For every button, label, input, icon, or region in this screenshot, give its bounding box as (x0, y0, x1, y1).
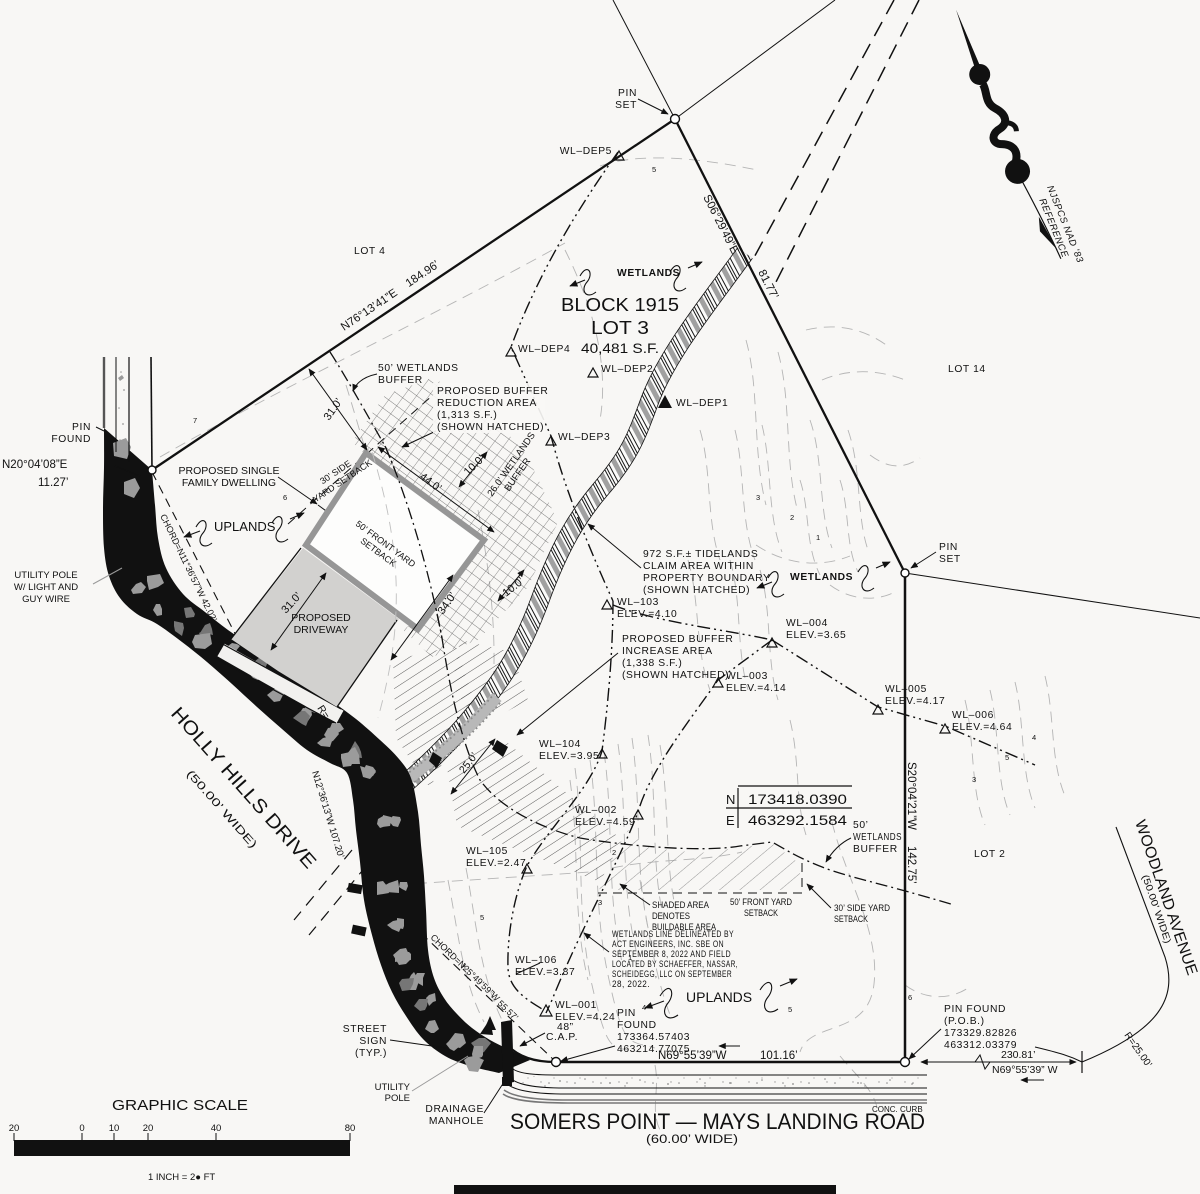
svg-text:7: 7 (193, 416, 197, 425)
svg-text:WL–DEP2: WL–DEP2 (601, 364, 653, 375)
svg-text:PROPOSED BUFFER: PROPOSED BUFFER (622, 634, 733, 645)
svg-text:C.A.P.: C.A.P. (546, 1032, 578, 1043)
svg-text:UPLANDS: UPLANDS (686, 989, 752, 1005)
svg-text:BLOCK 1915: BLOCK 1915 (561, 295, 679, 315)
svg-text:(SHOWN HATCHED): (SHOWN HATCHED) (622, 670, 729, 681)
svg-text:101.16’: 101.16’ (760, 1050, 798, 1062)
svg-text:WL–DEP4: WL–DEP4 (518, 344, 570, 355)
svg-text:BUFFER: BUFFER (853, 844, 898, 855)
svg-text:WL–DEP5: WL–DEP5 (560, 146, 612, 157)
svg-text:WL–005: WL–005 (885, 684, 927, 695)
svg-text:173329.82826: 173329.82826 (944, 1028, 1017, 1039)
svg-text:UPLANDS: UPLANDS (214, 519, 276, 534)
svg-text:5: 5 (480, 913, 484, 922)
svg-text:(1,338 S.F.): (1,338 S.F.) (622, 658, 682, 669)
svg-text:WETLANDS: WETLANDS (617, 268, 680, 279)
svg-text:ELEV.=4.64: ELEV.=4.64 (952, 722, 1012, 733)
svg-text:S20°04’21”W: S20°04’21”W (905, 762, 917, 830)
svg-text:972 S.F.± TIDELANDS: 972 S.F.± TIDELANDS (643, 549, 758, 560)
svg-text:PROPOSED BUFFER: PROPOSED BUFFER (437, 386, 548, 397)
svg-text:WL–103: WL–103 (617, 597, 659, 608)
svg-text:W/ LIGHT AND: W/ LIGHT AND (14, 582, 78, 593)
svg-text:FOUND: FOUND (51, 434, 91, 445)
svg-text:FAMILY DWELLING: FAMILY DWELLING (182, 477, 276, 489)
svg-text:WL–006: WL–006 (952, 710, 994, 721)
svg-text:WETLANDS: WETLANDS (790, 572, 853, 583)
svg-text:INCREASE AREA: INCREASE AREA (622, 646, 713, 657)
svg-text:ELEV.=3.95: ELEV.=3.95 (539, 751, 599, 762)
svg-text:GUY WIRE: GUY WIRE (22, 594, 70, 605)
svg-text:173418.0390: 173418.0390 (748, 792, 847, 807)
svg-text:WL–004: WL–004 (786, 618, 828, 629)
svg-text:5: 5 (1005, 753, 1009, 762)
svg-text:ELEV.=4.59: ELEV.=4.59 (575, 817, 635, 828)
svg-text:ELEV.=4.17: ELEV.=4.17 (885, 696, 945, 707)
svg-text:WL–002: WL–002 (575, 805, 617, 816)
svg-text:PIN FOUND: PIN FOUND (944, 1004, 1006, 1015)
svg-text:WETLANDS: WETLANDS (853, 832, 902, 843)
svg-text:UTILITY: UTILITY (375, 1082, 411, 1093)
svg-text:WL–104: WL–104 (539, 739, 581, 750)
svg-text:GRAPHIC SCALE: GRAPHIC SCALE (112, 1098, 248, 1114)
svg-text:ELEV.=4.10: ELEV.=4.10 (617, 609, 677, 620)
svg-text:POLE: POLE (385, 1093, 410, 1104)
svg-text:SEPTEMBER 8, 2022 AND FIELD: SEPTEMBER 8, 2022 AND FIELD (612, 949, 731, 959)
svg-text:SET: SET (615, 100, 637, 111)
svg-text:20: 20 (9, 1123, 20, 1134)
svg-text:10: 10 (109, 1123, 120, 1134)
svg-text:2: 2 (790, 513, 794, 522)
svg-text:SETBACK: SETBACK (744, 908, 778, 918)
svg-text:DRAINAGE: DRAINAGE (425, 1104, 484, 1115)
svg-text:LOCATED BY SCHAEFFER, NASSAR,: LOCATED BY SCHAEFFER, NASSAR, (612, 959, 738, 969)
svg-text:5: 5 (788, 1005, 792, 1014)
svg-text:E: E (726, 813, 735, 828)
svg-text:LOT 14: LOT 14 (948, 364, 986, 375)
svg-text:142.75’: 142.75’ (905, 846, 917, 884)
svg-text:ELEV.=2.47: ELEV.=2.47 (466, 858, 526, 869)
svg-text:MANHOLE: MANHOLE (429, 1116, 484, 1127)
svg-text:ELEV.=3.87: ELEV.=3.87 (515, 967, 575, 978)
svg-text:ELEV.=4.14: ELEV.=4.14 (726, 683, 786, 694)
svg-text:20: 20 (143, 1123, 154, 1134)
svg-text:LOT 2: LOT 2 (974, 849, 1005, 860)
svg-text:N69°55’39” W: N69°55’39” W (992, 1064, 1058, 1076)
svg-text:463214.77075: 463214.77075 (617, 1044, 690, 1055)
svg-text:LOT 3: LOT 3 (591, 318, 649, 338)
svg-text:PROPOSED: PROPOSED (291, 612, 351, 624)
svg-text:SETBACK: SETBACK (834, 914, 868, 924)
svg-text:CONC. CURB: CONC. CURB (872, 1105, 923, 1114)
svg-text:3: 3 (756, 493, 760, 502)
svg-text:(60.00’ WIDE): (60.00’ WIDE) (646, 1134, 738, 1146)
svg-text:6: 6 (908, 993, 912, 1002)
svg-text:28, 2022.: 28, 2022. (612, 979, 650, 989)
svg-text:WL–DEP3: WL–DEP3 (558, 432, 610, 443)
svg-text:ACT ENGINEERS, INC. SBE ON: ACT ENGINEERS, INC. SBE ON (612, 939, 724, 949)
svg-text:1 INCH = 2● FT: 1 INCH = 2● FT (148, 1172, 215, 1183)
svg-text:40,481 S.F.: 40,481 S.F. (581, 341, 659, 356)
svg-text:BUFFER: BUFFER (378, 375, 423, 386)
svg-text:173364.57403: 173364.57403 (617, 1032, 690, 1043)
svg-text:CLAIM AREA WITHIN: CLAIM AREA WITHIN (643, 561, 754, 572)
svg-text:3: 3 (972, 775, 976, 784)
svg-text:50’: 50’ (853, 820, 869, 831)
svg-text:N20°04’08”E: N20°04’08”E (2, 459, 68, 471)
svg-text:6: 6 (283, 493, 287, 502)
svg-text:230.81’: 230.81’ (1001, 1049, 1035, 1061)
svg-text:WL–105: WL–105 (466, 846, 508, 857)
svg-text:STREET: STREET (343, 1024, 387, 1035)
svg-text:PROPOSED SINGLE: PROPOSED SINGLE (179, 465, 280, 477)
svg-text:SOMERS POINT — MAYS LANDING RO: SOMERS POINT — MAYS LANDING ROAD (510, 1109, 925, 1134)
svg-text:WL–003: WL–003 (726, 671, 768, 682)
svg-text:50’ FRONT YARD: 50’ FRONT YARD (730, 897, 792, 907)
svg-text:11.27’: 11.27’ (38, 477, 68, 489)
svg-text:80: 80 (345, 1123, 356, 1134)
svg-text:WL–DEP1: WL–DEP1 (676, 398, 728, 409)
svg-text:5: 5 (652, 165, 656, 174)
svg-text:SHADED AREA: SHADED AREA (652, 900, 710, 911)
svg-text:3: 3 (598, 898, 602, 907)
svg-text:PIN: PIN (617, 1008, 636, 1019)
svg-text:PIN: PIN (939, 542, 958, 553)
svg-text:PIN: PIN (72, 422, 91, 433)
svg-text:ELEV.=3.65: ELEV.=3.65 (786, 630, 846, 641)
svg-text:N: N (726, 792, 735, 807)
svg-text:WL–001: WL–001 (555, 1000, 597, 1011)
svg-text:PIN: PIN (618, 88, 637, 99)
svg-text:WETLANDS LINE DELINEATED BY: WETLANDS LINE DELINEATED BY (612, 929, 734, 939)
svg-text:FOUND: FOUND (617, 1020, 657, 1031)
svg-text:UTILITY POLE: UTILITY POLE (14, 570, 77, 581)
svg-text:50’ WETLANDS: 50’ WETLANDS (378, 363, 459, 374)
svg-text:(SHOWN HATCHED): (SHOWN HATCHED) (643, 585, 750, 596)
svg-text:(1,313 S.F.): (1,313 S.F.) (437, 410, 497, 421)
svg-text:DENOTES: DENOTES (652, 911, 690, 922)
svg-text:WL–106: WL–106 (515, 955, 557, 966)
svg-text:40: 40 (211, 1123, 222, 1134)
svg-text:(P.O.B.): (P.O.B.) (944, 1016, 985, 1027)
svg-text:1: 1 (816, 533, 820, 542)
svg-text:0: 0 (79, 1123, 84, 1134)
svg-text:SIGN: SIGN (359, 1036, 387, 1047)
svg-text:SCHEIDEGG, LLC ON SEPTEMBER: SCHEIDEGG, LLC ON SEPTEMBER (612, 969, 732, 979)
svg-text:LOT 4: LOT 4 (354, 246, 385, 257)
svg-text:(TYP.): (TYP.) (355, 1048, 387, 1059)
svg-text:REDUCTION AREA: REDUCTION AREA (437, 398, 537, 409)
svg-text:463292.1584: 463292.1584 (748, 813, 848, 828)
svg-text:PROPERTY BOUNDARY: PROPERTY BOUNDARY (643, 573, 771, 584)
svg-text:30’ SIDE YARD: 30’ SIDE YARD (834, 903, 890, 913)
svg-text:SET: SET (939, 554, 961, 565)
svg-text:4: 4 (1032, 733, 1036, 742)
svg-text:DRIVEWAY: DRIVEWAY (294, 624, 349, 636)
